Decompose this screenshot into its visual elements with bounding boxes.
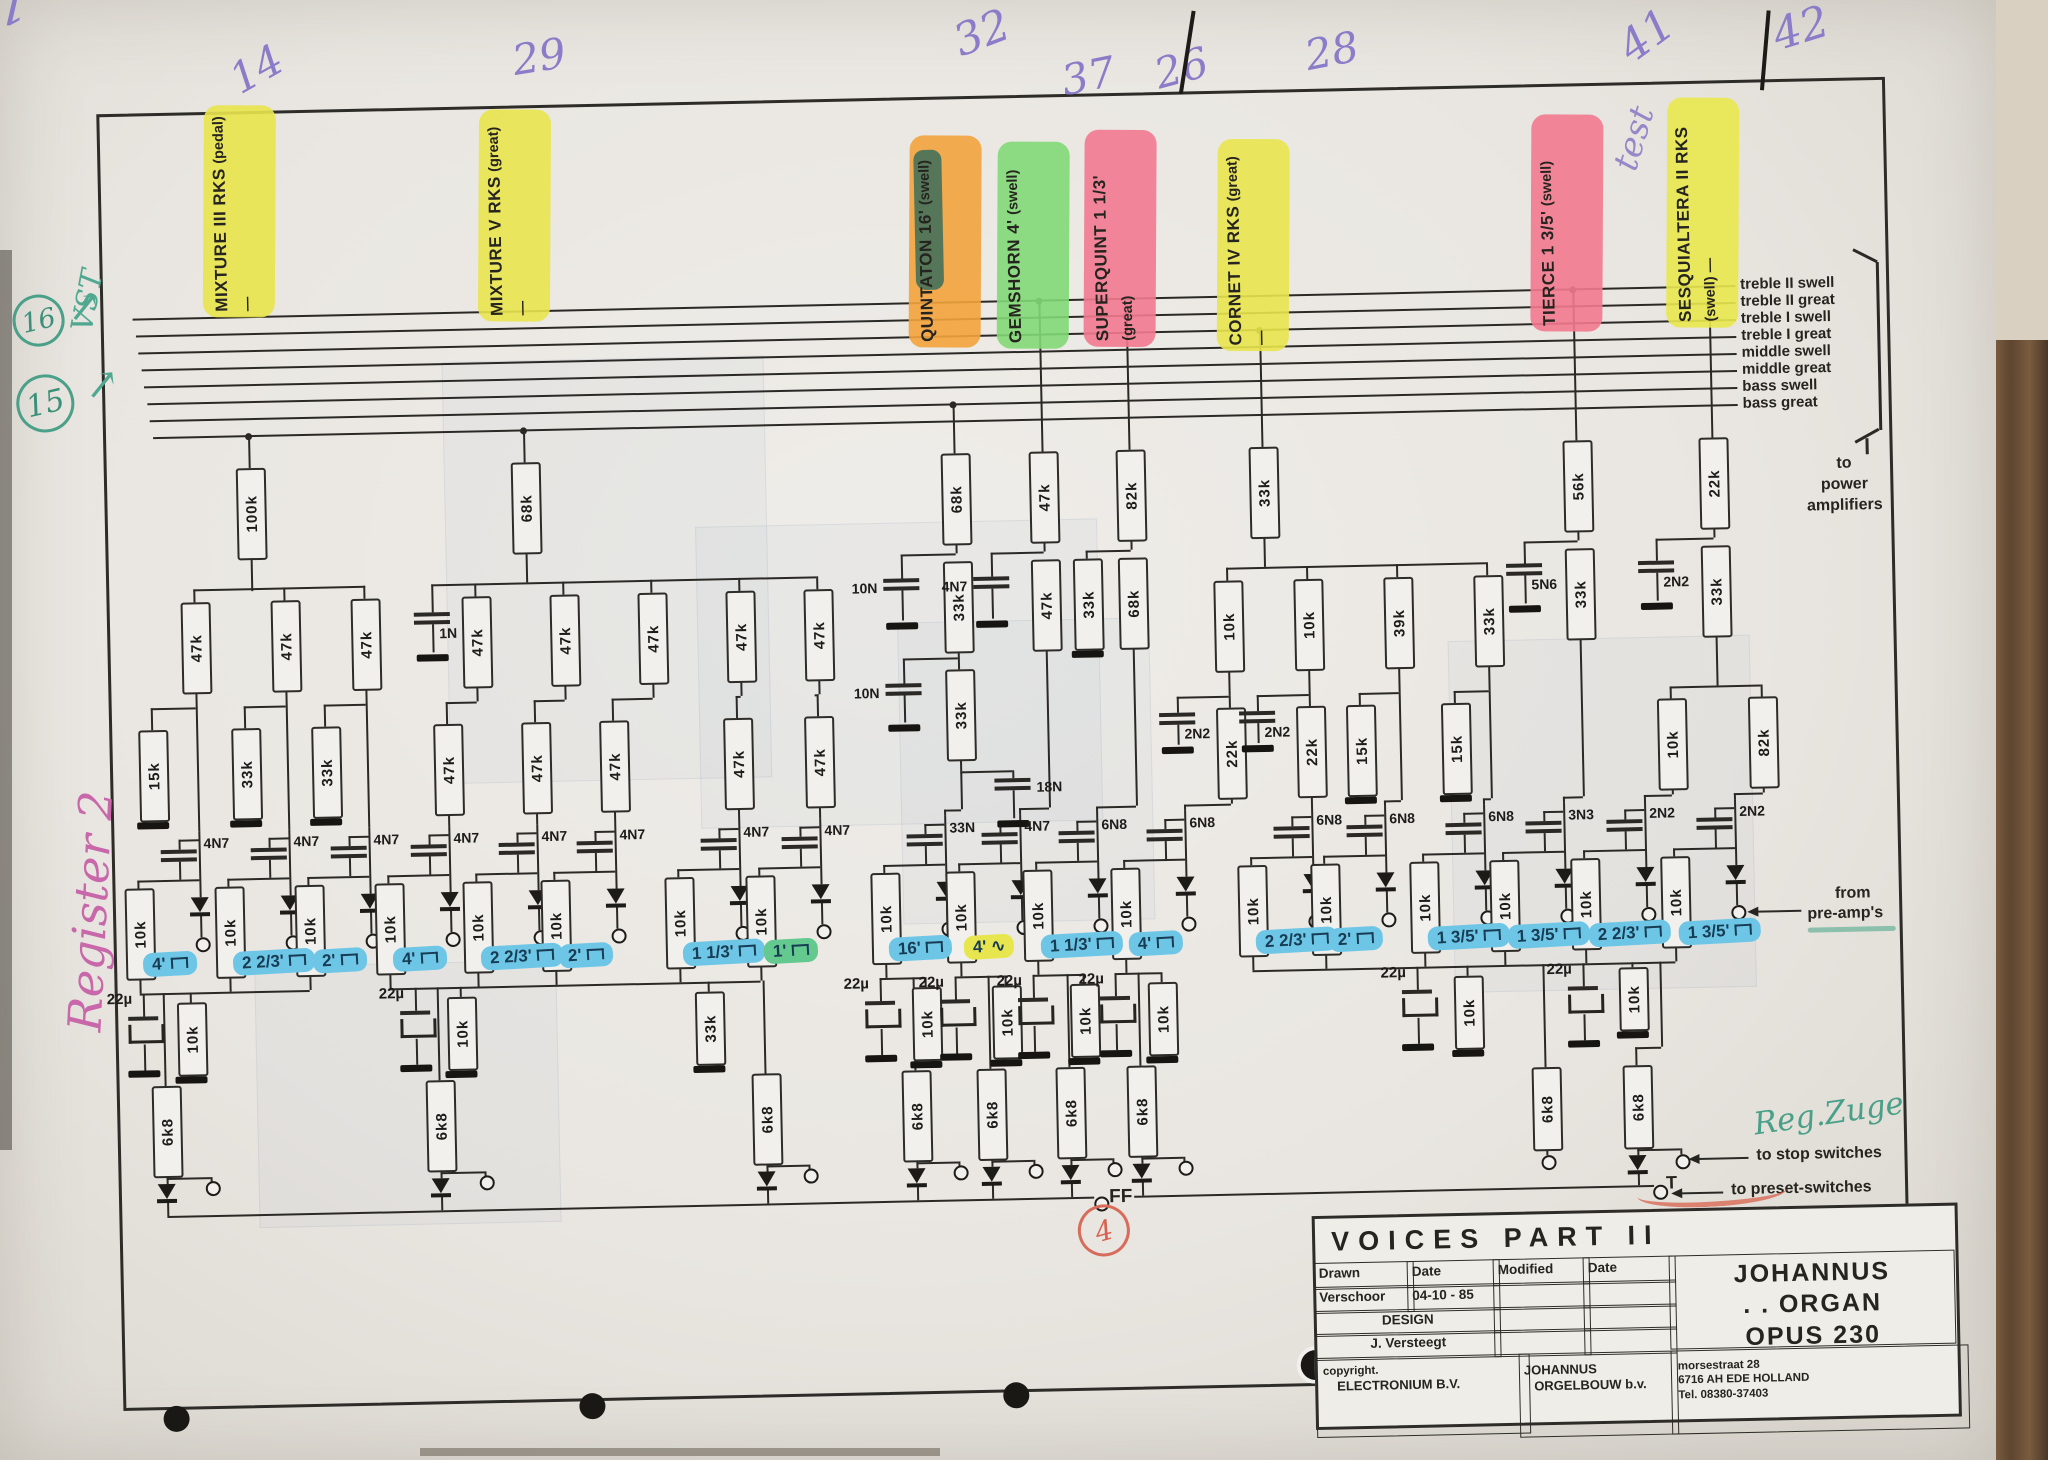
ground-icon [886,622,918,630]
wire [1000,844,1003,862]
capacitor-plate [577,841,613,846]
wire [1656,539,1659,561]
builder-name2: ORGELBOUW b.v. [1524,1376,1673,1395]
resistor-15k: 15k [1346,705,1378,798]
wire [1673,848,1676,856]
capacitor-4N7: 4N7 [373,831,399,848]
resistor-47k: 47k [270,600,302,693]
wire [1386,890,1389,912]
capacitor-4N7: 4N7 [453,829,479,846]
wire [594,831,597,841]
wire [708,982,711,992]
capacitor-plate [1273,826,1309,831]
capacitor-2N2: 2N2 [1663,573,1689,590]
footage-label-135: 1 3/5' [1507,921,1590,950]
capacitor-plate [1607,827,1643,832]
wire [324,705,327,727]
wire [1464,835,1467,853]
diode-icon [1726,865,1744,880]
diode-icon [758,1171,776,1186]
footage-label-223: 2 2/3' [480,942,563,971]
capacitor-plate [1239,719,1275,724]
wire [441,1196,444,1210]
wire [718,828,721,838]
resistor-22k: 22k [1698,437,1730,530]
wire [1116,1024,1119,1050]
wire [516,832,536,835]
resistor-47k: 47k [350,598,382,691]
wire [1761,685,1764,697]
resistor-47k: 47k [461,596,493,689]
wire [1160,972,1163,982]
capacitor-plate [1697,825,1733,830]
diode-bar [982,1182,1002,1186]
stop-label-SESQUIALTERA-II-RKS: SESQUIALTERA II RKS (swell) — [1668,103,1737,322]
wire [1565,887,1568,909]
copyright-holder: ELECTRONIUM B.V. [1323,1375,1523,1395]
wire [1306,566,1309,579]
ground-icon [137,822,169,830]
capacitor-2N2: 2N2 [1649,804,1675,821]
wire [268,837,288,840]
wire [817,694,820,716]
resistor-33k: 33k [945,669,977,762]
wire [1625,831,1628,849]
capacitor-5N6: 5N6 [1531,576,1557,593]
bus-label-middle-swell: middle swell [1741,342,1831,361]
wire [1485,888,1488,910]
ecap-plate [1018,998,1048,1003]
wire [516,833,519,843]
diode-bar [1061,1180,1081,1184]
ground-icon [976,620,1008,628]
capacitor-18N: 18N [1036,778,1062,795]
wire [1396,564,1399,577]
wire [1543,811,1546,821]
handwritten-41: 41 [1609,0,1684,73]
wire [429,856,432,874]
ground-icon [1617,1031,1649,1039]
terminal [445,932,460,947]
ecap-plate [1568,986,1598,991]
resistor-33k: 33k [1073,558,1105,651]
ground-icon [940,1053,972,1061]
wire [1466,966,1469,976]
capacitor-4N7: 4N7 [824,822,850,839]
wire [1291,816,1294,826]
capacitor-plate [782,836,818,841]
resistor-47k: 47k [549,594,581,687]
capacitor-6N8: 6N8 [1189,814,1215,831]
wire [143,993,146,1016]
wire [190,992,193,1002]
capacitor-6N8: 6N8 [1101,816,1127,833]
resistor-47k: 47k [599,720,631,813]
diode-icon [1636,867,1654,882]
to-power-amplifiers: amplifiers [1785,495,1905,516]
ground-icon [1452,1049,1484,1057]
diode-bar [907,1183,927,1187]
wire [1582,963,1585,986]
wire [650,580,653,593]
diode-icon [812,884,830,899]
wire [1364,814,1384,817]
diode-icon [191,897,209,912]
wire [283,587,286,600]
capacitor-10N: 10N [831,580,877,597]
wire [991,553,994,577]
handwritten-42: 42 [1767,0,1836,61]
capacitor-plate [161,849,197,854]
capacitor-plate [886,691,922,696]
resistor-6k8: 6k8 [901,1070,933,1163]
capacitor-plate [994,778,1030,783]
capacitor-22u: 22µ [1380,964,1406,982]
capacitor-22u: 22µ [1546,961,1572,979]
ground-icon [1345,797,1377,805]
wire [137,881,140,889]
terminal [1181,916,1196,931]
capacitor-6N8: 6N8 [1389,810,1415,827]
footage-label-4: 4' [1128,930,1183,957]
resistor-68k: 68k [1118,557,1150,650]
wire [1364,815,1367,825]
wire [1486,562,1489,575]
wire [475,873,478,881]
capacitor-plate [1059,839,1095,844]
wire [474,583,477,596]
from-preamps: from [1835,884,1871,903]
diode-icon [1061,1165,1079,1180]
diode-icon [1176,876,1194,891]
capacitor-6N8: 6N8 [1316,811,1342,828]
diode-bar [757,1186,777,1190]
capacitor-6N8: 6N8 [1488,808,1514,825]
footage-label-2: 2' [558,942,613,969]
diode-bar [1132,1178,1152,1182]
capacitor-4N7: 4N7 [541,828,567,845]
capacitor-33N: 33N [949,819,975,836]
wire [1086,551,1089,559]
circled-16: 16 [7,289,70,352]
wire [903,658,906,683]
wire [1502,852,1505,860]
arrow-left-icon [1747,907,1758,917]
hole-punch [579,1393,606,1420]
wire [1715,830,1718,848]
diode-icon [1376,872,1394,887]
diode-icon [432,1178,450,1193]
diode-bar [431,1193,451,1197]
capacitor-1N: 1N [439,625,457,641]
resistor-6k8: 6k8 [752,1073,784,1166]
ecap-plate [940,999,970,1004]
wire [1646,885,1649,907]
resistor-10k: 10k [1293,579,1325,672]
capacitor-22u: 22µ [379,985,405,1003]
wire [1384,800,1401,803]
capacitor-plate [907,842,943,847]
wire [1635,1047,1638,1065]
stop-label-GEMSHORN-4-: GEMSHORN 4' (swell) [999,147,1067,343]
capacitor-plate [161,857,197,862]
capacitor-22u: 22µ [1078,970,1104,988]
resistor-68k: 68k [511,462,543,555]
wire [738,578,741,591]
capacitor-plate [1445,822,1481,827]
wire [1417,1018,1420,1044]
wire [956,1027,959,1053]
ecap-cup [1100,1004,1136,1024]
wire [428,834,448,837]
ecap-cup [1018,1005,1054,1025]
wire [370,912,373,934]
wire [1257,695,1260,711]
resistor-10k: 10k [177,1002,209,1077]
stop-label-TIERCE-1-3-5-: TIERCE 1 3/5' (swell) [1533,120,1601,326]
capacitor-plate [331,854,367,859]
handwritten-14: 14 [221,35,292,104]
wire [1309,694,1312,706]
scanned-schematic-photo: 100k47k47k47k15k33k33k68k47k47k47k47k47k… [0,0,2048,1460]
footage-label-223: 2 2/3' [1588,919,1671,948]
print-bleed [254,960,561,1228]
resistor-33k: 33k [1565,548,1597,641]
title-block: VOICES PART II Drawn Date Modified Date … [1312,1203,1962,1430]
wire [1583,1014,1586,1040]
capacitor-plate [251,855,287,860]
wire [428,834,431,844]
capacitor-plate [1606,819,1642,824]
stop-text: CORNET IV RKS (great) — [1219,145,1274,346]
from-preamps: pre-amp's [1807,904,1883,924]
sheet-title: VOICES PART II [1315,1206,1956,1258]
wire [387,875,390,883]
stop-text: QUINTATON 16' (swell) [911,142,942,343]
wire [1164,819,1184,822]
footage-label-2: 2' [312,947,367,974]
resistor-47k: 47k [433,724,465,817]
footage-label-1: 1' [763,937,818,964]
resistor-6k8: 6k8 [1623,1065,1655,1150]
stop-label-MIXTURE-III-RKS: MIXTURE III RKS (pedal) — [205,111,273,312]
resistor-56k: 56k [1562,440,1594,533]
capacitor-plate [411,844,447,849]
stop-text: SESQUIALTERA II RKS (swell) — [1668,103,1724,322]
capacitor-plate [1347,833,1383,838]
ground-icon [1242,745,1274,753]
resistor-22k: 22k [1296,706,1328,799]
stop-text: TIERCE 1 3/5' (swell) [1533,121,1564,327]
resistor-10k: 10k [1657,698,1689,791]
stop-label-MIXTURE-V-RKS: MIXTURE V RKS (great) — [480,115,548,316]
wire [924,824,927,834]
resistor-10k: 10k [912,987,944,1062]
ground-icon [1509,605,1541,613]
terminal [803,1168,818,1183]
footage-label-135: 1 3/5' [1678,917,1761,946]
arrow-left-icon [1688,1154,1699,1164]
wire [1012,770,1015,778]
ground-icon [1146,1056,1178,1064]
footage-label-4: 4' ∿ [963,933,1015,960]
terminal [953,1165,968,1180]
wire [958,863,961,871]
wire [1638,1173,1641,1185]
ecap-cup [1402,997,1438,1017]
wire [1165,841,1168,859]
wire [1076,820,1096,823]
ecap-plate [865,1001,895,1006]
wire [944,809,961,812]
capacitor-plate [331,846,367,851]
footage-label-16: 16' [888,934,952,961]
wire [1257,723,1260,743]
capacitor-plate [1506,563,1542,568]
bus-label-bass-swell: bass swell [1742,376,1817,395]
wire [925,846,928,864]
resistor-47k: 47k [1029,451,1061,544]
capacitor-plate [1506,571,1542,576]
capacitor-4N7: 4N7 [1024,817,1050,834]
capacitor-plate [982,840,1018,845]
bus-label-bass-great: bass great [1743,393,1818,412]
wire [1033,975,1036,998]
capacitor-4N7: 4N7 [921,578,967,595]
diode-bar [1726,880,1746,884]
ground-icon [693,1065,725,1073]
ground-icon [1440,795,1472,803]
resistor-47k: 47k [803,589,835,682]
capacitor-plate [499,850,535,855]
capacitor-plate [885,683,921,688]
resistor-33k: 33k [1248,447,1280,540]
wire [1736,883,1739,905]
wire [1714,808,1717,818]
capacitor-4N7: 4N7 [293,833,319,850]
wire [1114,973,1117,996]
wire [144,1044,147,1070]
wire [349,858,352,876]
resistor-47k: 47k [804,716,836,809]
wire [517,855,520,873]
wire [1624,809,1627,819]
capacitor-plate [907,834,943,839]
wire [1323,856,1326,864]
wire [1563,796,1583,799]
resistor-15k: 15k [138,730,170,823]
wire [1670,686,1673,698]
wire [1359,693,1362,705]
wire [736,696,739,718]
wire [1098,896,1101,918]
capacitor-plate [1638,568,1674,573]
wire [1292,838,1295,856]
wire [1177,697,1180,713]
ground-icon [417,654,449,662]
wire [151,708,154,730]
builder-cell: JOHANNUS ORGELBOUW b.v. [1519,1350,1680,1437]
capacitor-3N3: 3N3 [1568,806,1594,823]
wire [290,913,293,935]
terminal [1541,1155,1556,1170]
handwritten-32: 32 [946,0,1017,67]
wire [799,827,802,837]
to-stop-switches: to stop switches [1756,1144,1882,1165]
wire [460,987,463,997]
capacitor-plate [414,620,450,625]
capacitor-4N7: 4N7 [619,826,645,843]
resistor-68k: 68k [941,453,973,546]
resistor-10k: 10k [1148,982,1180,1057]
wire [348,836,351,846]
resistor-39k: 39k [1383,577,1415,670]
diode-icon [983,1167,1001,1182]
stop-text: MIXTURE V RKS (great) — [480,115,535,316]
handwritten-37: 37 [1057,47,1119,105]
resistor-10k: 10k [447,997,479,1072]
terminal [1107,1162,1122,1177]
circled-15: 15 [10,369,80,439]
schematic-drawing: 100k47k47k47k15k33k33k68k47k47k47k47k47k… [0,0,2048,1460]
ground-icon [310,818,342,826]
resistor-82k: 82k [1748,696,1780,789]
ground-icon [910,1061,942,1069]
to-power-amplifiers: to [1784,454,1904,475]
capacitor-2N2: 2N2 [1264,723,1290,740]
footage-label-113: 1 1/3' [1040,931,1123,960]
resistor-10k: 10k [1618,967,1649,1032]
wire [1624,809,1644,812]
wire [799,826,819,829]
wire [1077,843,1080,861]
ecap-plate [128,1016,158,1021]
wire [1454,691,1457,703]
capacitor-plate [1159,720,1195,725]
wire [1164,819,1167,829]
wire [821,902,824,924]
wire [992,1185,995,1199]
capacitor-plate [577,849,613,854]
capacitor-22u: 22µ [843,975,869,993]
resistor-10k: 10k [1070,983,1102,1058]
wire [1250,857,1253,865]
wire [616,907,619,929]
wire [1543,811,1563,814]
ecap-plate [400,1010,430,1015]
wire [719,850,722,868]
diode-bar [190,912,210,916]
diode-bar [1636,882,1656,886]
wire [1071,1183,1074,1197]
hole-punch [1003,1382,1030,1409]
ground-icon [888,724,920,732]
copyright-cell: copyright. ELECTRONIUM B.V. [1316,1354,1532,1438]
resistor-33k: 33k [311,726,343,819]
stop-text: MIXTURE III RKS (pedal) — [205,111,260,312]
paper-sheet: 100k47k47k47k15k33k33k68k47k47k47k47k47k… [0,0,1996,1460]
terminal [205,1181,220,1196]
capacitor-4N7: 4N7 [203,835,229,852]
capacitor-plate [1346,825,1382,830]
ground-icon [230,820,262,828]
diode-icon [1088,878,1106,893]
wire [595,853,598,871]
wire [269,860,272,878]
terminal [816,924,831,939]
capacitor-plate [251,847,287,852]
wire [800,849,803,867]
